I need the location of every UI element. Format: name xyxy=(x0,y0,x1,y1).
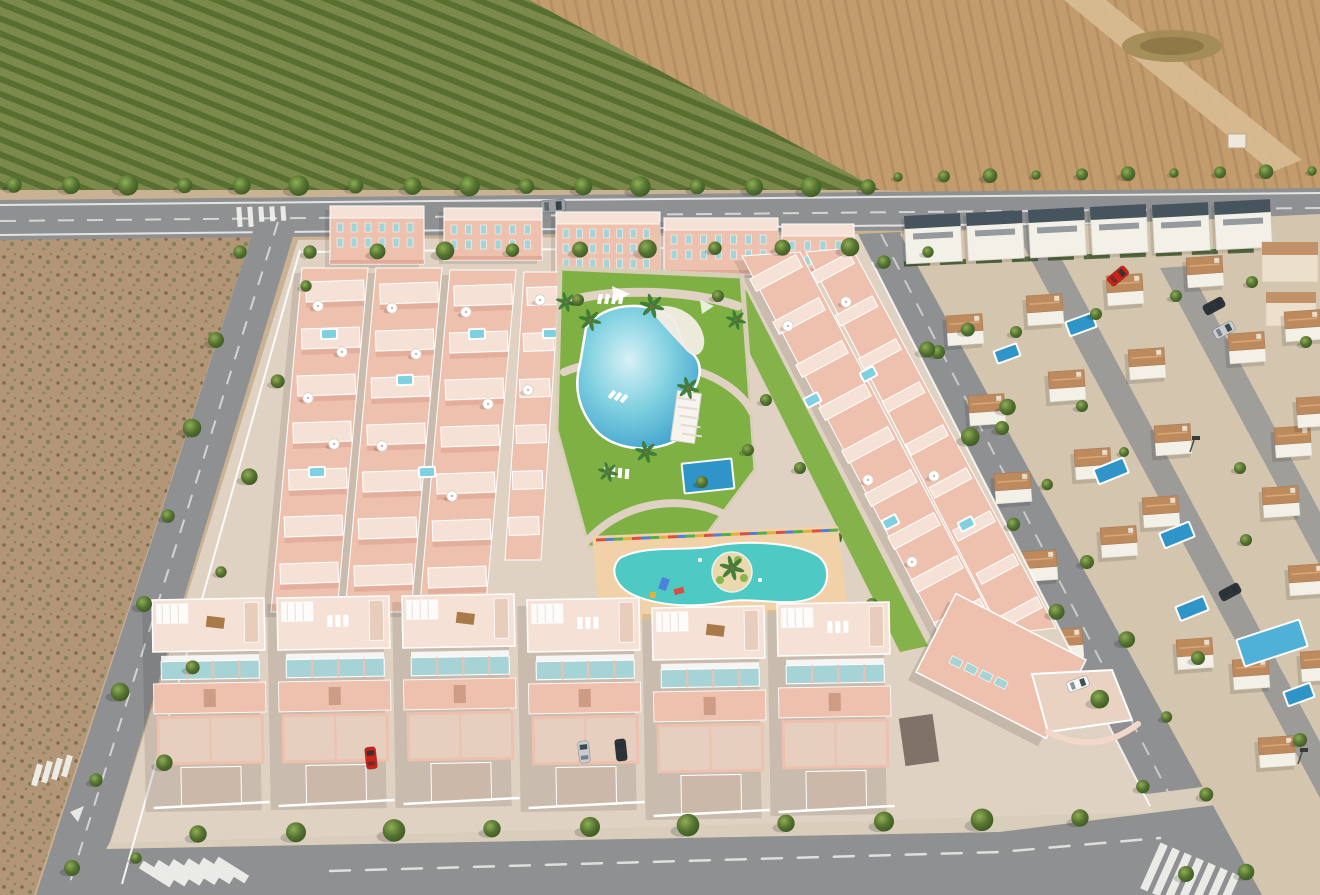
villa xyxy=(1284,563,1320,600)
villa xyxy=(1096,525,1138,562)
townhouse-villa xyxy=(267,596,395,810)
modern-house xyxy=(963,210,1025,264)
townhouse-villa xyxy=(517,598,645,812)
car-red xyxy=(364,746,377,769)
car-dark xyxy=(614,738,627,761)
garage-ramp xyxy=(899,714,939,766)
plunge-pool xyxy=(320,328,338,341)
aerial-render-stage xyxy=(0,0,1320,895)
villa xyxy=(1022,293,1064,330)
apartment-roof xyxy=(1262,242,1318,255)
villa xyxy=(1182,255,1224,292)
townhouse-villa xyxy=(767,602,895,816)
playground-toy xyxy=(650,592,656,598)
villa xyxy=(1124,347,1166,384)
apartment-roof xyxy=(1266,292,1316,303)
field-hut xyxy=(1228,134,1246,148)
plunge-pool xyxy=(418,466,436,479)
car-silver xyxy=(577,740,590,763)
villa xyxy=(1150,423,1192,460)
plunge-pool xyxy=(468,328,486,341)
townhouse-villa xyxy=(142,598,270,812)
field-vegetation-core xyxy=(1140,37,1204,55)
plunge-pool xyxy=(396,374,414,387)
townhouse-villa xyxy=(392,594,520,808)
modern-house xyxy=(1087,204,1149,258)
modern-house xyxy=(1025,207,1087,261)
aerial-site-plan-render xyxy=(0,0,1320,895)
plunge-pool xyxy=(308,466,326,479)
lap-pool xyxy=(680,457,735,494)
villa xyxy=(1292,395,1320,432)
modern-house xyxy=(901,213,963,267)
van-gray xyxy=(540,199,566,213)
villa xyxy=(1254,735,1296,772)
villa xyxy=(1224,331,1266,368)
water-jet xyxy=(698,558,702,562)
apartment-block xyxy=(439,208,542,264)
water-jet xyxy=(758,578,762,582)
plunge-pool xyxy=(542,328,558,340)
modern-house xyxy=(1149,202,1211,256)
villa xyxy=(1258,485,1300,522)
villa xyxy=(1280,309,1320,346)
villa xyxy=(990,471,1032,508)
island-shrub xyxy=(716,576,724,584)
townhouse-villa xyxy=(642,606,770,820)
island-shrub xyxy=(740,574,748,582)
